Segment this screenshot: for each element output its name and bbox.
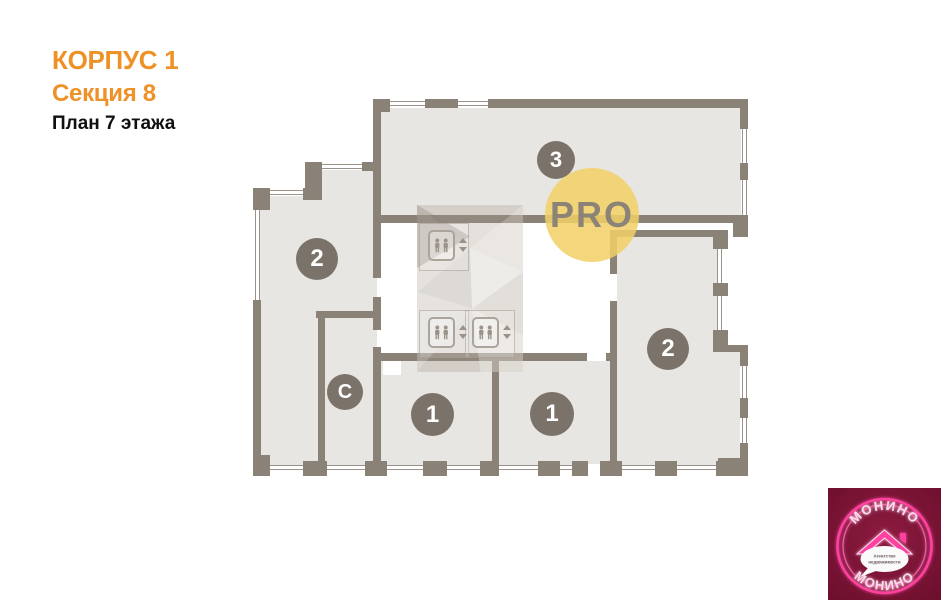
wall-segment xyxy=(318,311,325,465)
window-strip xyxy=(390,101,425,106)
window-strip xyxy=(742,418,747,443)
wall-segment xyxy=(733,215,748,237)
wall-segment xyxy=(740,398,748,418)
window-strip xyxy=(270,190,303,195)
wall-segment xyxy=(303,461,327,476)
elevator-people-icon xyxy=(431,238,452,253)
wall-segment xyxy=(600,461,622,476)
window-strip xyxy=(717,296,722,330)
logo-tagline-line2: недвижимости xyxy=(868,560,900,565)
room-badge-2-left: 2 xyxy=(296,238,338,280)
wall-segment xyxy=(655,461,677,476)
up-arrow-icon xyxy=(459,238,467,243)
room-fill xyxy=(258,196,310,465)
monino-logo-emblem: МОНИНО МОНИНО Агентство недвижимости xyxy=(828,488,941,600)
elevator-icon xyxy=(472,317,499,348)
elevator-direction-arrows xyxy=(503,325,511,339)
wall-segment xyxy=(423,461,447,476)
section-title: Секция 8 xyxy=(52,80,178,108)
window-strip xyxy=(742,366,747,398)
elevator-people-icon xyxy=(475,325,496,340)
window-strip xyxy=(742,180,747,215)
floor-title: План 7 этажа xyxy=(52,113,178,135)
wall-segment xyxy=(373,347,381,465)
window-strip xyxy=(742,129,747,163)
floor-plan-page: КОРПУС 1 Секция 8 План 7 этажа xyxy=(0,0,941,600)
wall-segment xyxy=(253,300,261,460)
room-badge-studio: С xyxy=(327,374,363,410)
door-gap xyxy=(588,464,600,472)
logo-tagline-line1: Агентство xyxy=(873,554,895,559)
window-strip xyxy=(322,164,362,169)
wall-segment xyxy=(740,163,748,180)
wall-segment xyxy=(538,461,560,476)
elevator-icon xyxy=(428,230,455,261)
window-strip xyxy=(255,210,260,302)
wall-segment xyxy=(316,311,381,318)
elevator-icon xyxy=(428,317,455,348)
down-arrow-icon xyxy=(459,247,467,252)
pro-watermark-badge: PRO xyxy=(545,168,639,262)
room-badge-3: 3 xyxy=(537,141,575,179)
down-arrow-icon xyxy=(459,334,467,339)
pro-watermark-label: PRO xyxy=(550,194,634,236)
wall-segment xyxy=(425,99,458,108)
wall-segment xyxy=(253,188,270,210)
wall-segment xyxy=(572,461,588,476)
wall-segment xyxy=(740,345,748,366)
elevator-direction-arrows xyxy=(459,325,467,339)
building-title: КОРПУС 1 xyxy=(52,46,178,76)
wall-segment xyxy=(362,162,378,171)
window-strip xyxy=(717,249,722,283)
wall-segment xyxy=(716,461,748,476)
wall-segment xyxy=(253,461,270,476)
window-strip xyxy=(458,101,488,106)
plan-title-block: КОРПУС 1 Секция 8 План 7 этажа xyxy=(52,46,178,135)
up-arrow-icon xyxy=(503,325,511,330)
room-badge-1-right: 1 xyxy=(530,392,574,436)
wall-segment xyxy=(492,361,499,465)
wall-segment xyxy=(713,283,728,296)
wall-segment xyxy=(303,188,322,200)
agency-logo: МОНИНО МОНИНО Агентство недвижимости xyxy=(828,488,941,600)
elevator-direction-arrows xyxy=(459,238,467,252)
wall-segment xyxy=(740,99,748,129)
door-gap xyxy=(383,361,401,375)
wall-segment xyxy=(610,301,617,465)
wall-segment xyxy=(365,461,387,476)
down-arrow-icon xyxy=(503,334,511,339)
wall-segment xyxy=(488,99,741,108)
elevator-people-icon xyxy=(431,325,452,340)
wall-segment xyxy=(480,461,499,476)
room-badge-2-right: 2 xyxy=(647,328,689,370)
room-badge-1-left: 1 xyxy=(411,393,454,436)
wall-segment xyxy=(713,230,728,249)
wall-segment xyxy=(373,108,381,278)
up-arrow-icon xyxy=(459,325,467,330)
